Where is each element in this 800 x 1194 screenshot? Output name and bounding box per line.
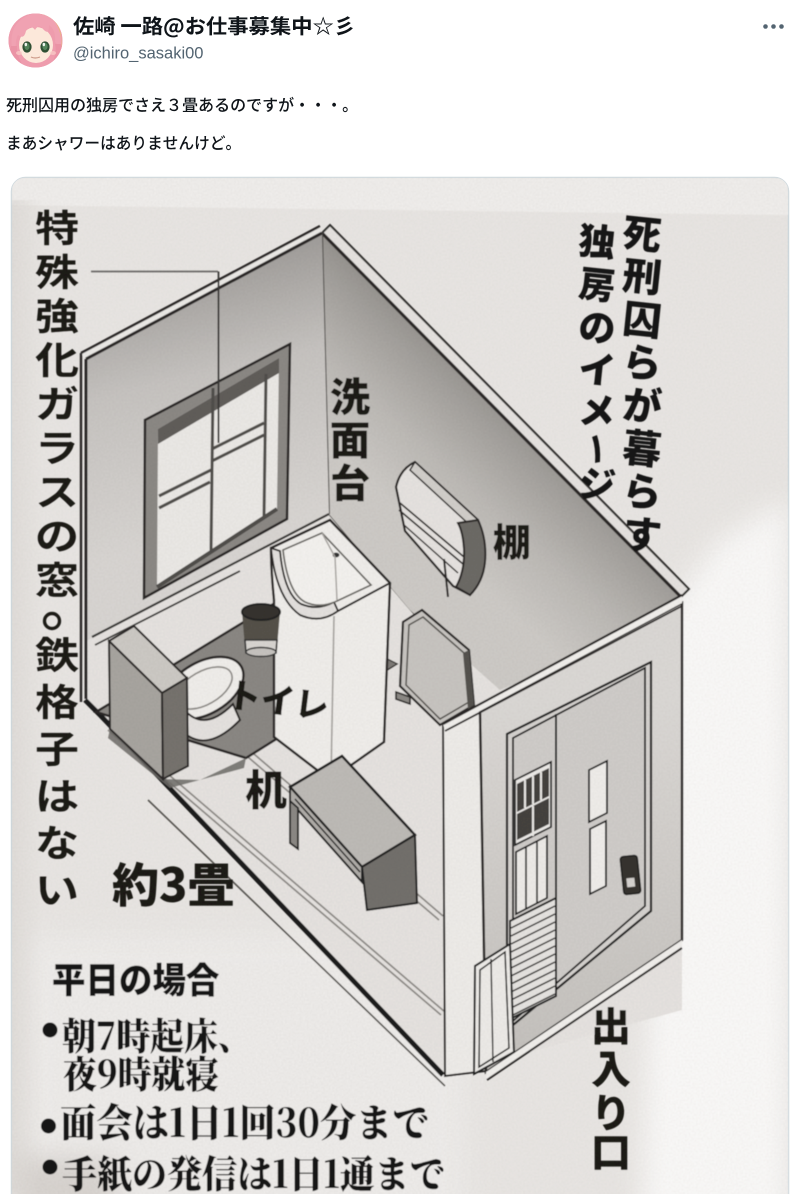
svg-text:@ichiro_sasaki00: @ichiro_sasaki00 bbox=[73, 45, 203, 63]
